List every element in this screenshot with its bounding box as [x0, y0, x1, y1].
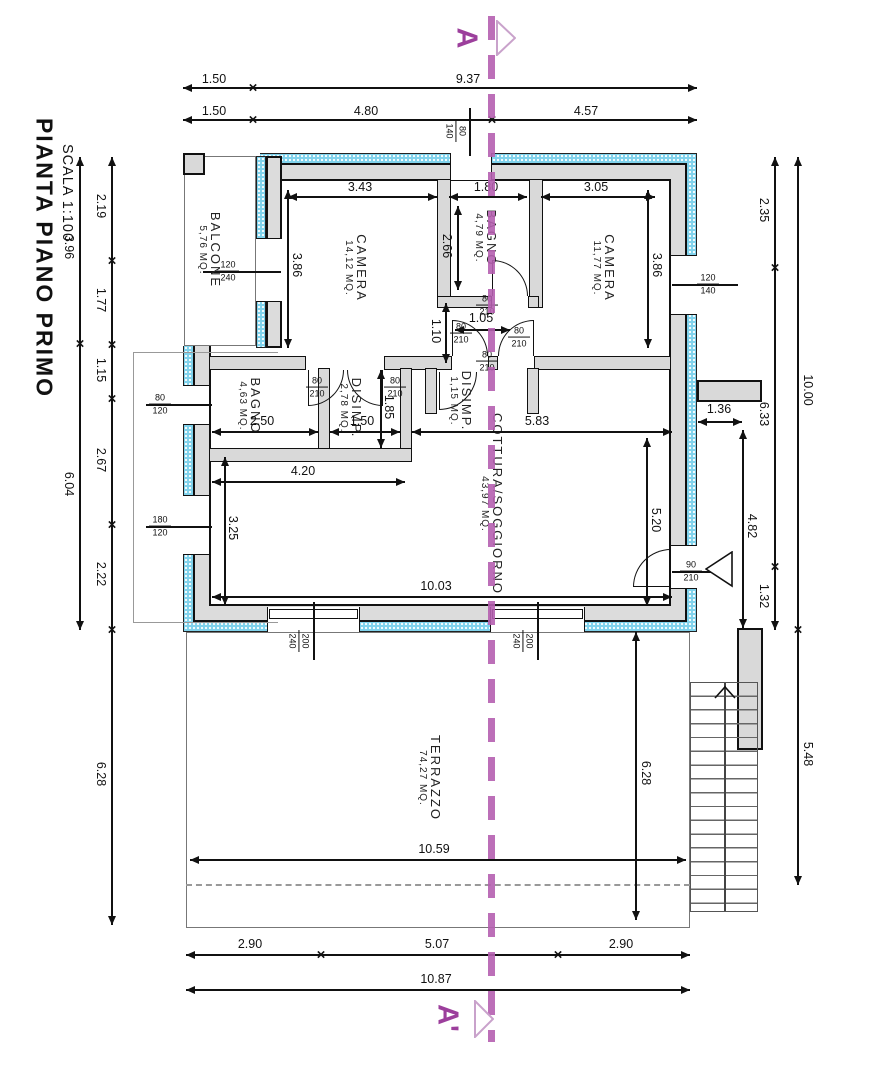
- dim-line-c12: [412, 431, 672, 432]
- opening-tick: [469, 108, 471, 156]
- opening-size-label: 80210: [450, 322, 472, 345]
- partition-wall: [528, 296, 539, 308]
- dim-line-li6: [111, 630, 112, 925]
- dim-line-b2: [186, 989, 690, 990]
- dim-arrow-icon: [739, 430, 747, 439]
- dim-arrow-icon: [644, 339, 652, 348]
- plan-title: PIANTA PIANO PRIMO: [31, 118, 58, 398]
- room-name: DISIMP.: [349, 378, 364, 439]
- dim-label-b1c: 2.90: [609, 937, 633, 951]
- dim-label-t1a: 1.50: [202, 72, 226, 86]
- partition-wall: [527, 368, 539, 414]
- room-area: 4,79 MQ.: [473, 210, 484, 267]
- partition-wall: [425, 368, 437, 414]
- dim-line-c6: [647, 190, 648, 348]
- room-area: 74,27 MQ.: [417, 735, 428, 821]
- dim-arrow-icon: [698, 418, 707, 426]
- staircase-stringer: [724, 683, 726, 911]
- dim-line-r3: [774, 268, 775, 567]
- room-name: CAMERA: [354, 234, 369, 302]
- dim-label-c8: 1.50: [350, 414, 374, 428]
- window-gap: [183, 495, 209, 555]
- dim-label-c9: 1.85: [382, 395, 396, 419]
- dim-label-r2: 2.35: [757, 198, 771, 222]
- dim-arrow-icon: [739, 619, 747, 628]
- dim-break-mark: ×: [249, 113, 258, 128]
- room-area: 11,77 MQ.: [591, 234, 602, 302]
- plan-scale: SCALA 1:100: [59, 144, 75, 242]
- opening-height: 210: [683, 572, 698, 582]
- dim-arrow-icon: [771, 621, 779, 630]
- dim-arrow-icon: [309, 428, 318, 436]
- opening-size-label: 80120: [149, 393, 171, 416]
- dim-break-mark: ×: [771, 261, 780, 276]
- section-cut-line: [488, 16, 495, 1042]
- dim-line-r1: [742, 430, 743, 628]
- partition-wall: [209, 448, 412, 462]
- dim-line-tr2: [635, 632, 636, 920]
- entrance-arrow-icon: [705, 551, 733, 588]
- dim-arrow-icon: [442, 303, 450, 312]
- floor-plan: PIANTA PIANO PRIMO SCALA 1:100 A A' 1.50…: [0, 0, 870, 1076]
- section-arrow-bottom-icon: [474, 1000, 494, 1038]
- dim-arrow-icon: [221, 596, 229, 605]
- dim-label-c16: 3.25: [226, 516, 240, 540]
- dim-line-b1b: [321, 954, 558, 955]
- dim-label-b1a: 2.90: [238, 937, 262, 951]
- dim-arrow-icon: [518, 193, 527, 201]
- room-area: 1,15 MQ.: [448, 371, 459, 432]
- dim-line-c8: [330, 431, 400, 432]
- dim-line-t2a: [183, 119, 253, 120]
- room-label-disimp_a: DISIMP.2,78 MQ.: [338, 378, 364, 439]
- pillar: [183, 153, 205, 175]
- opening-height: 210: [453, 334, 468, 344]
- opening-height: 140: [445, 123, 455, 138]
- opening-size-label: 200240: [288, 630, 311, 652]
- room-name: DISIMP.: [459, 371, 474, 432]
- dim-arrow-icon: [454, 281, 462, 290]
- opening-width: 80: [155, 393, 165, 403]
- dim-break-mark: ×: [76, 337, 85, 352]
- dim-arrow-icon: [183, 84, 192, 92]
- dim-arrow-icon: [330, 428, 339, 436]
- dim-line-c4: [457, 206, 458, 290]
- room-area: 2,78 MQ.: [338, 378, 349, 439]
- dim-break-mark: ×: [794, 623, 803, 638]
- dim-arrow-icon: [644, 190, 652, 199]
- opening-width: 200: [524, 633, 534, 648]
- room-label-bagno_c: BAGNO4,79 MQ.: [473, 210, 499, 267]
- dim-arrow-icon: [212, 428, 221, 436]
- dim-break-mark: ×: [554, 948, 563, 963]
- dim-label-r7: 1.36: [707, 402, 731, 416]
- dim-arrow-icon: [108, 157, 116, 166]
- dim-arrow-icon: [186, 951, 195, 959]
- section-arrow-top-icon: [496, 20, 516, 56]
- dim-arrow-icon: [186, 986, 195, 994]
- dim-arrow-icon: [681, 986, 690, 994]
- dim-arrow-icon: [183, 116, 192, 124]
- dim-label-t2c: 4.57: [574, 104, 598, 118]
- opening-width: 80: [514, 326, 524, 336]
- partition-wall: [209, 356, 306, 370]
- dim-line-r6: [797, 630, 798, 885]
- dim-label-t2a: 1.50: [202, 104, 226, 118]
- dim-arrow-icon: [632, 911, 640, 920]
- dim-line-c5: [541, 196, 655, 197]
- terrace-dashed-line: [186, 884, 690, 886]
- dim-label-c6: 3.86: [650, 253, 664, 277]
- opening-width: 120: [700, 273, 715, 283]
- dim-break-mark: ×: [108, 518, 117, 533]
- opening-height: 140: [700, 285, 715, 295]
- dim-label-c7: 2.50: [250, 414, 274, 428]
- dim-arrow-icon: [377, 439, 385, 448]
- dim-arrow-icon: [643, 438, 651, 447]
- opening-height: 210: [511, 338, 526, 348]
- dim-arrow-icon: [688, 116, 697, 124]
- dim-break-mark: ×: [108, 623, 117, 638]
- dim-label-li1: 2.19: [94, 194, 108, 218]
- opening-height: 120: [152, 527, 167, 537]
- dim-break-mark: ×: [108, 392, 117, 407]
- opening-width: 80: [457, 126, 467, 136]
- dim-line-c15: [212, 481, 405, 482]
- dim-label-l1: 3.96: [62, 235, 76, 259]
- staircase-up-arrow-icon: [714, 685, 736, 700]
- dim-arrow-icon: [212, 478, 221, 486]
- dim-arrow-icon: [391, 428, 400, 436]
- dim-arrow-icon: [794, 876, 802, 885]
- opening-size-label: 80210: [508, 326, 530, 349]
- dim-arrow-icon: [412, 428, 421, 436]
- dim-label-c12: 5.83: [525, 414, 549, 428]
- dim-label-c4: 2.66: [440, 234, 454, 258]
- dim-arrow-icon: [76, 621, 84, 630]
- dim-label-li6: 6.28: [94, 762, 108, 786]
- fraction-bar: [298, 630, 299, 652]
- dim-arrow-icon: [449, 193, 458, 201]
- room-area: 4,63 MQ.: [237, 378, 248, 435]
- dim-label-c5: 3.05: [584, 180, 608, 194]
- dim-label-c13: 5.20: [649, 508, 663, 532]
- opening-height: 210: [387, 388, 402, 398]
- room-name: CAMERA: [602, 234, 617, 302]
- dim-label-b1b: 5.07: [425, 937, 449, 951]
- dim-label-r4: 1.32: [757, 584, 771, 608]
- opening-width: 180: [152, 515, 167, 525]
- dim-arrow-icon: [396, 478, 405, 486]
- dim-label-li5: 2.22: [94, 562, 108, 586]
- dim-label-li4: 2.67: [94, 448, 108, 472]
- dim-line-li2: [111, 261, 112, 345]
- room-name: TERRAZZO: [428, 735, 443, 821]
- opening-tick: [313, 602, 315, 660]
- dim-arrow-icon: [681, 951, 690, 959]
- dim-label-tr2: 6.28: [639, 761, 653, 785]
- dim-line-t2c: [492, 119, 697, 120]
- dim-line-c14: [212, 596, 672, 597]
- dim-break-mark: ×: [108, 254, 117, 269]
- reference-line: [133, 622, 278, 623]
- dim-label-t1b: 9.37: [456, 72, 480, 86]
- dim-label-c15: 4.20: [291, 464, 315, 478]
- room-label-camera2: CAMERA11,77 MQ.: [591, 234, 617, 302]
- opening-tick: [537, 602, 539, 660]
- dim-line-c2: [287, 190, 288, 348]
- opening-size-label: 120240: [217, 260, 239, 283]
- fraction-bar: [455, 120, 456, 142]
- opening-height: 240: [288, 633, 298, 648]
- dim-arrow-icon: [442, 354, 450, 363]
- dim-label-li3: 1.15: [94, 358, 108, 382]
- fraction-bar: [522, 630, 523, 652]
- dim-line-b1c: [558, 954, 690, 955]
- dim-arrow-icon: [284, 339, 292, 348]
- opening-size-label: 180120: [149, 515, 171, 538]
- dim-break-mark: ×: [317, 948, 326, 963]
- opening-size-label: 90210: [680, 560, 702, 583]
- opening-width: 80: [456, 322, 466, 332]
- room-area: 14,12 MQ.: [343, 234, 354, 302]
- partition-wall: [534, 356, 671, 370]
- dim-arrow-icon: [643, 597, 651, 606]
- dim-label-li2: 1.77: [94, 288, 108, 312]
- dim-arrow-icon: [688, 84, 697, 92]
- dim-label-c1: 3.43: [348, 180, 372, 194]
- dim-label-c14: 10.03: [420, 579, 451, 593]
- opening-height: 120: [152, 405, 167, 415]
- balcony-door-gap: [256, 238, 282, 302]
- dim-line-t1a: [183, 87, 253, 88]
- dim-line-li5: [111, 525, 112, 630]
- dim-arrow-icon: [108, 916, 116, 925]
- room-label-camera1: CAMERA14,12 MQ.: [343, 234, 369, 302]
- dim-label-r5: 10.00: [801, 374, 815, 405]
- opening-width: 80: [312, 376, 322, 386]
- dim-label-r3: 6.33: [757, 402, 771, 426]
- opening-width: 200: [300, 633, 310, 648]
- room-label-disimp_b: DISIMP.1,15 MQ.: [448, 371, 474, 432]
- opening-size-label: 120140: [697, 273, 719, 296]
- dim-line-b1a: [186, 954, 321, 955]
- opening-size-label: 200240: [512, 630, 535, 652]
- dim-arrow-icon: [212, 593, 221, 601]
- reference-line: [133, 352, 134, 623]
- opening-size-label: 80210: [306, 376, 328, 399]
- dim-label-l2: 6.04: [62, 472, 76, 496]
- dim-arrow-icon: [632, 632, 640, 641]
- dim-label-tr1: 10.59: [418, 842, 449, 856]
- dim-arrow-icon: [541, 193, 550, 201]
- dim-label-r1: 4.82: [745, 514, 759, 538]
- opening-height: 210: [309, 388, 324, 398]
- section-marker-a: A: [450, 28, 483, 49]
- opening-width: 90: [686, 560, 696, 570]
- opening-size-label: 80140: [445, 120, 468, 142]
- window-gap: [450, 153, 492, 180]
- dim-break-mark: ×: [249, 81, 258, 96]
- dim-arrow-icon: [794, 157, 802, 166]
- dim-break-mark: ×: [771, 560, 780, 575]
- section-marker-a-prime: A': [431, 1004, 464, 1032]
- opening-height: 240: [220, 272, 235, 282]
- wall-projection: [697, 380, 762, 402]
- dim-line-l1: [79, 157, 80, 344]
- dim-line-c13: [646, 438, 647, 606]
- opening-width: 80: [390, 376, 400, 386]
- opening-width: 120: [220, 260, 235, 270]
- dim-label-c11: 1.10: [429, 319, 443, 343]
- dim-label-c2: 3.86: [290, 253, 304, 277]
- dim-line-c7: [212, 431, 318, 432]
- dim-arrow-icon: [771, 157, 779, 166]
- dim-line-li1: [111, 157, 112, 261]
- dim-label-r6: 5.48: [801, 742, 815, 766]
- dim-line-t1b: [253, 87, 697, 88]
- room-area: 5,76 MQ.: [197, 212, 208, 288]
- dim-arrow-icon: [428, 193, 437, 201]
- dim-break-mark: ×: [108, 338, 117, 353]
- dim-line-r5: [797, 157, 798, 630]
- dim-arrow-icon: [663, 428, 672, 436]
- dim-line-li4: [111, 399, 112, 525]
- dim-arrow-icon: [733, 418, 742, 426]
- dim-label-b2: 10.87: [420, 972, 451, 986]
- reference-line: [133, 352, 278, 353]
- dim-arrow-icon: [284, 190, 292, 199]
- opening-size-label: 80210: [384, 376, 406, 399]
- dim-arrow-icon: [663, 593, 672, 601]
- dim-arrow-icon: [677, 856, 686, 864]
- room-label-terrazzo: TERRAZZO74,27 MQ.: [417, 735, 443, 821]
- dim-arrow-icon: [190, 856, 199, 864]
- dim-arrow-icon: [76, 157, 84, 166]
- dim-line-l2: [79, 344, 80, 630]
- opening-height: 240: [512, 633, 522, 648]
- dim-arrow-icon: [454, 206, 462, 215]
- dim-arrow-icon: [221, 457, 229, 466]
- dim-line-c1: [288, 196, 437, 197]
- dim-line-r2: [774, 157, 775, 268]
- dim-line-tr1: [190, 859, 686, 860]
- dim-label-t2b: 4.80: [354, 104, 378, 118]
- staircase: [690, 682, 758, 912]
